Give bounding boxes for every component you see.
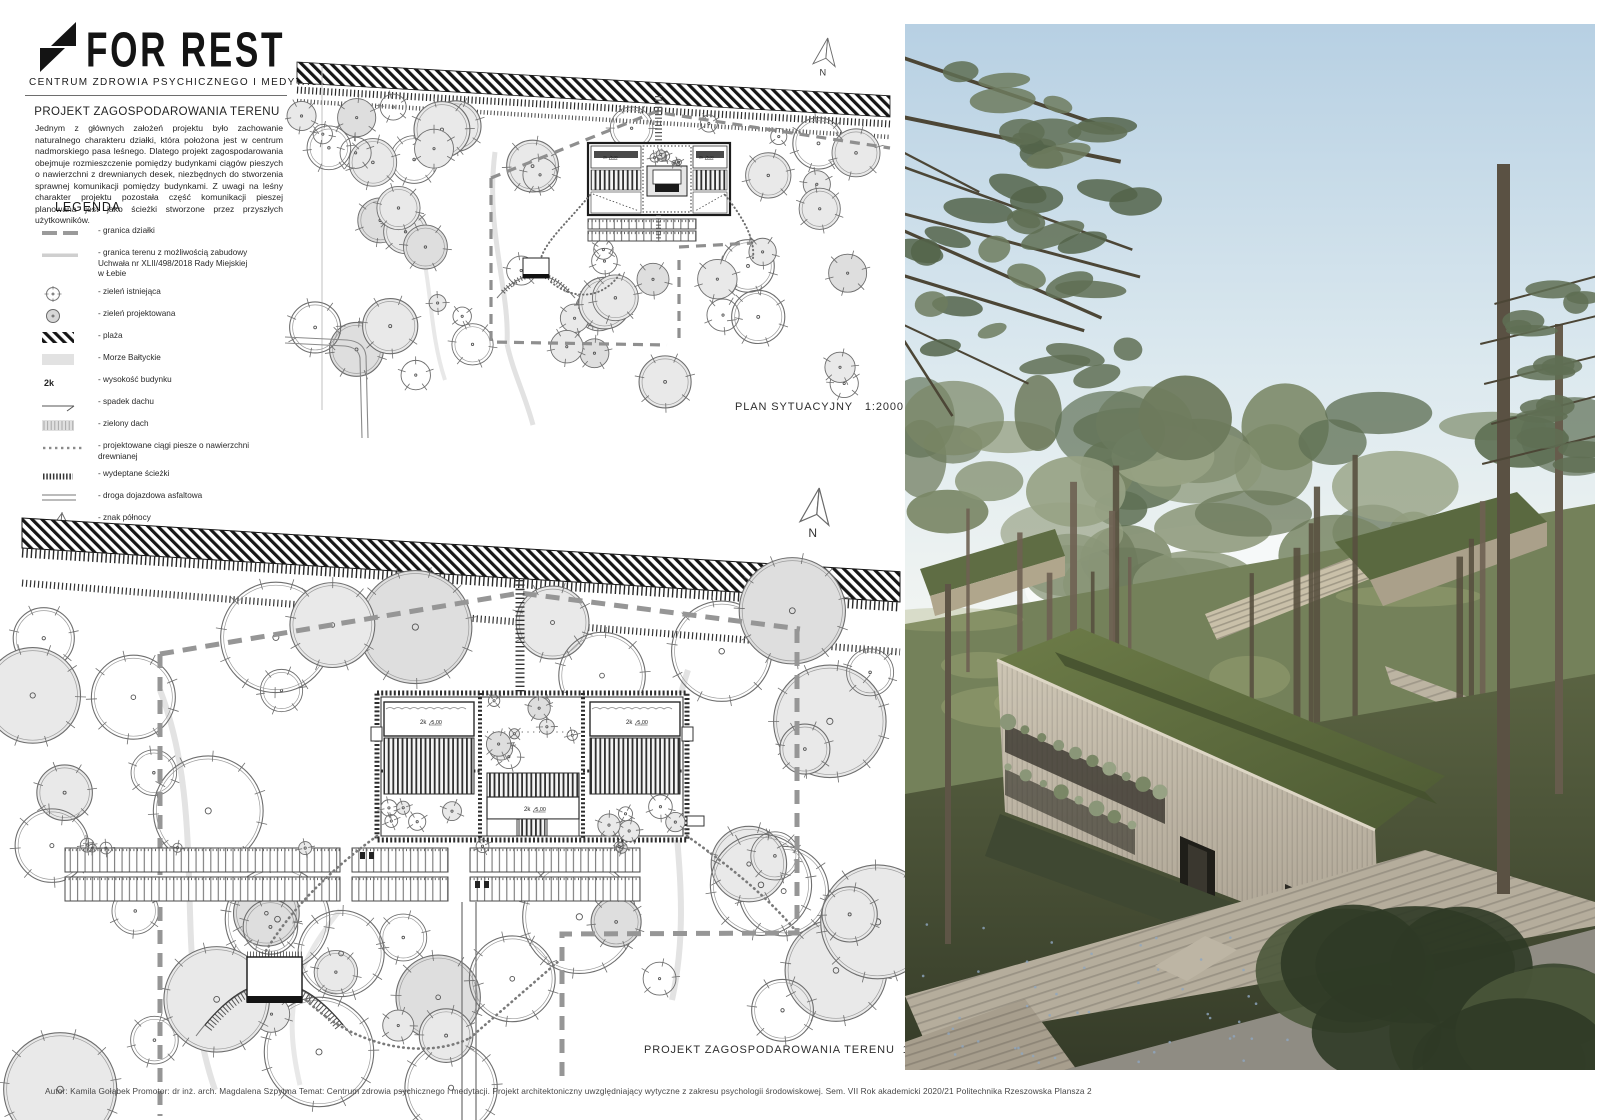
tree-symbol — [796, 184, 843, 233]
legend-symbol-existing-greenery-icon — [40, 286, 88, 302]
north-arrow-icon: N — [813, 38, 835, 78]
building-height-label: 2k — [626, 720, 633, 726]
balcony-plant — [1069, 747, 1082, 760]
legend-item-label: - granica terenu z możliwością zabudowy … — [98, 248, 247, 280]
tree-symbol — [828, 125, 883, 180]
tree-symbol — [128, 746, 179, 800]
pine-trunk — [1497, 164, 1510, 894]
footer-credits: Autor: Kamila Gołąbek Promotor: dr inż. … — [45, 1086, 1092, 1096]
balcony-plant — [1020, 769, 1032, 781]
site-plan-1-2000: 2k5,002k5,00N — [285, 0, 895, 440]
legend-item: - granica działki — [40, 226, 290, 241]
legend-item-label: - granica działki — [98, 226, 155, 237]
tree-symbol — [448, 321, 498, 367]
site-plan-1-1000: 2k5,002k5,002k5,00N — [0, 440, 905, 1120]
balcony-plant — [1037, 733, 1046, 742]
building-height-label: 2k — [420, 720, 427, 726]
legend-symbol-roof-slope-icon — [40, 396, 88, 412]
tree-symbol — [547, 329, 586, 367]
legend-item-label: - plaża — [98, 331, 123, 342]
balcony-plant — [1004, 763, 1011, 770]
tree-symbol — [635, 354, 695, 413]
wooden-walkway-dotted — [541, 195, 590, 258]
legend-item-label: - Morze Bałtyckie — [98, 353, 161, 364]
logo-divider — [25, 95, 287, 96]
roof-level-label: 5,00 — [535, 807, 546, 813]
legend-item-label: - zielony dach — [98, 419, 149, 430]
plan1-scale: 1:2000 — [865, 401, 904, 413]
building-complex: 2k5,002k5,00 — [588, 143, 730, 215]
north-label: N — [808, 526, 817, 540]
tree-symbol — [704, 298, 742, 336]
parking-row — [588, 219, 696, 229]
logo-title: FOR REST — [86, 24, 285, 79]
tree-symbol — [577, 335, 612, 369]
parking-row — [65, 877, 340, 901]
tree-symbol — [727, 286, 788, 347]
building-height-label: 2k — [699, 155, 703, 160]
intro-heading: PROJEKT ZAGOSPODAROWANIA TERENU — [28, 106, 286, 118]
building-complex: 2k5,002k5,002k5,00 — [371, 693, 704, 844]
render-visualization — [905, 24, 1595, 1070]
balcony-plant — [1128, 821, 1137, 830]
tree-symbol — [256, 667, 307, 715]
legend-item: - spadek dachu — [40, 397, 290, 412]
legend-item: - zielony dach — [40, 419, 290, 434]
balcony-plant — [1135, 777, 1150, 792]
plan2-caption: PROJEKT ZAGOSPODAROWANIA TERENU 1:1000 — [644, 1044, 942, 1056]
pine-trunk — [1555, 324, 1563, 794]
tree-symbol — [0, 644, 86, 746]
legend-heading: LEGENDA — [55, 200, 121, 214]
balcony-plant — [1108, 810, 1121, 823]
svg-text:2k: 2k — [44, 378, 55, 388]
balcony-plant — [1153, 785, 1168, 800]
legend-symbol-buildable-area-line-icon — [40, 247, 88, 263]
legend-symbol-baltic-sea-icon — [40, 352, 88, 368]
tree-symbol — [285, 100, 318, 135]
legend-symbol-green-roof-icon — [40, 418, 88, 434]
parking-row — [588, 231, 696, 241]
balcony-plant — [1074, 796, 1083, 805]
tree-symbol — [694, 256, 740, 303]
presentation-board: { "board": { "logo": { "icon": "bolt-tre… — [0, 0, 1600, 1120]
legend-item-label: - spadek dachu — [98, 397, 154, 408]
trees-layer — [285, 91, 884, 413]
site-boundary-dash — [160, 593, 800, 654]
tree-symbol — [742, 149, 795, 201]
tree-symbol — [310, 121, 336, 147]
tree-symbol — [634, 262, 672, 299]
render-scene — [905, 24, 1595, 1070]
building-height-label: 2k — [603, 155, 607, 160]
legend-item: 2k- wysokość budynku — [40, 375, 290, 390]
legend-item: - Morze Bałtyckie — [40, 353, 290, 368]
roof-level-label: 5,00 — [637, 720, 648, 726]
plan1-caption: PLAN SYTUACYJNY 1:2000 — [735, 401, 904, 413]
tree-symbol — [823, 349, 859, 385]
legend-item-label: - wysokość budynku — [98, 375, 172, 386]
logo-icon — [36, 20, 80, 74]
tree-symbol — [825, 251, 870, 296]
legend-item-label: - zieleń istniejąca — [98, 287, 161, 298]
balcony-plant — [1054, 784, 1069, 799]
plan2-title: PROJEKT ZAGOSPODAROWANIA TERENU — [644, 1044, 895, 1056]
legend-item-label: - zieleń projektowana — [98, 309, 175, 320]
tree-symbol — [346, 135, 401, 190]
parking-row — [352, 877, 448, 901]
balcony-plant — [1020, 725, 1029, 734]
balcony-plant — [1089, 801, 1105, 817]
tree-symbol — [508, 728, 520, 740]
balcony-plant — [1086, 755, 1098, 767]
legend-item: - zieleń istniejąca — [40, 287, 290, 302]
plan1-title: PLAN SYTUACYJNY — [735, 401, 853, 413]
legend-symbol-boundary-dash-line-icon — [40, 225, 88, 241]
parking-row — [470, 877, 640, 901]
parking-row — [470, 848, 640, 872]
roof-level-label: 5,00 — [431, 720, 442, 726]
trodden-path — [493, 152, 533, 425]
building-height-label: 2k — [524, 807, 531, 813]
balcony-plant — [1102, 762, 1116, 776]
tree-symbol — [0, 1029, 121, 1120]
tree-symbol — [398, 356, 434, 390]
legend-symbol-designed-greenery-icon — [40, 308, 88, 324]
pine-trunk — [945, 584, 951, 944]
balcony-plant — [1122, 772, 1131, 781]
parking-row — [352, 848, 448, 872]
legend-item: - zieleń projektowana — [40, 309, 290, 324]
roof-level-label: 5,00 — [707, 156, 714, 160]
balcony-plant — [1000, 714, 1016, 730]
tree-symbol — [452, 306, 472, 326]
north-label: N — [819, 68, 826, 78]
tree-symbol — [33, 762, 97, 825]
balcony-plant — [1040, 780, 1047, 787]
legend-symbol-beach-icon — [40, 330, 88, 346]
legend-item: - granica terenu z możliwością zabudowy … — [40, 248, 290, 280]
legend-symbol-building-height-icon: 2k — [40, 374, 88, 390]
roof-level-label: 5,00 — [611, 156, 618, 160]
logo-subtitle: CENTRUM ZDROWIA PSYCHICZNEGO I MEDYTACJI — [29, 77, 287, 88]
balcony-plant — [1053, 740, 1064, 751]
legend-item: - plaża — [40, 331, 290, 346]
north-arrow-icon: N — [800, 488, 829, 540]
